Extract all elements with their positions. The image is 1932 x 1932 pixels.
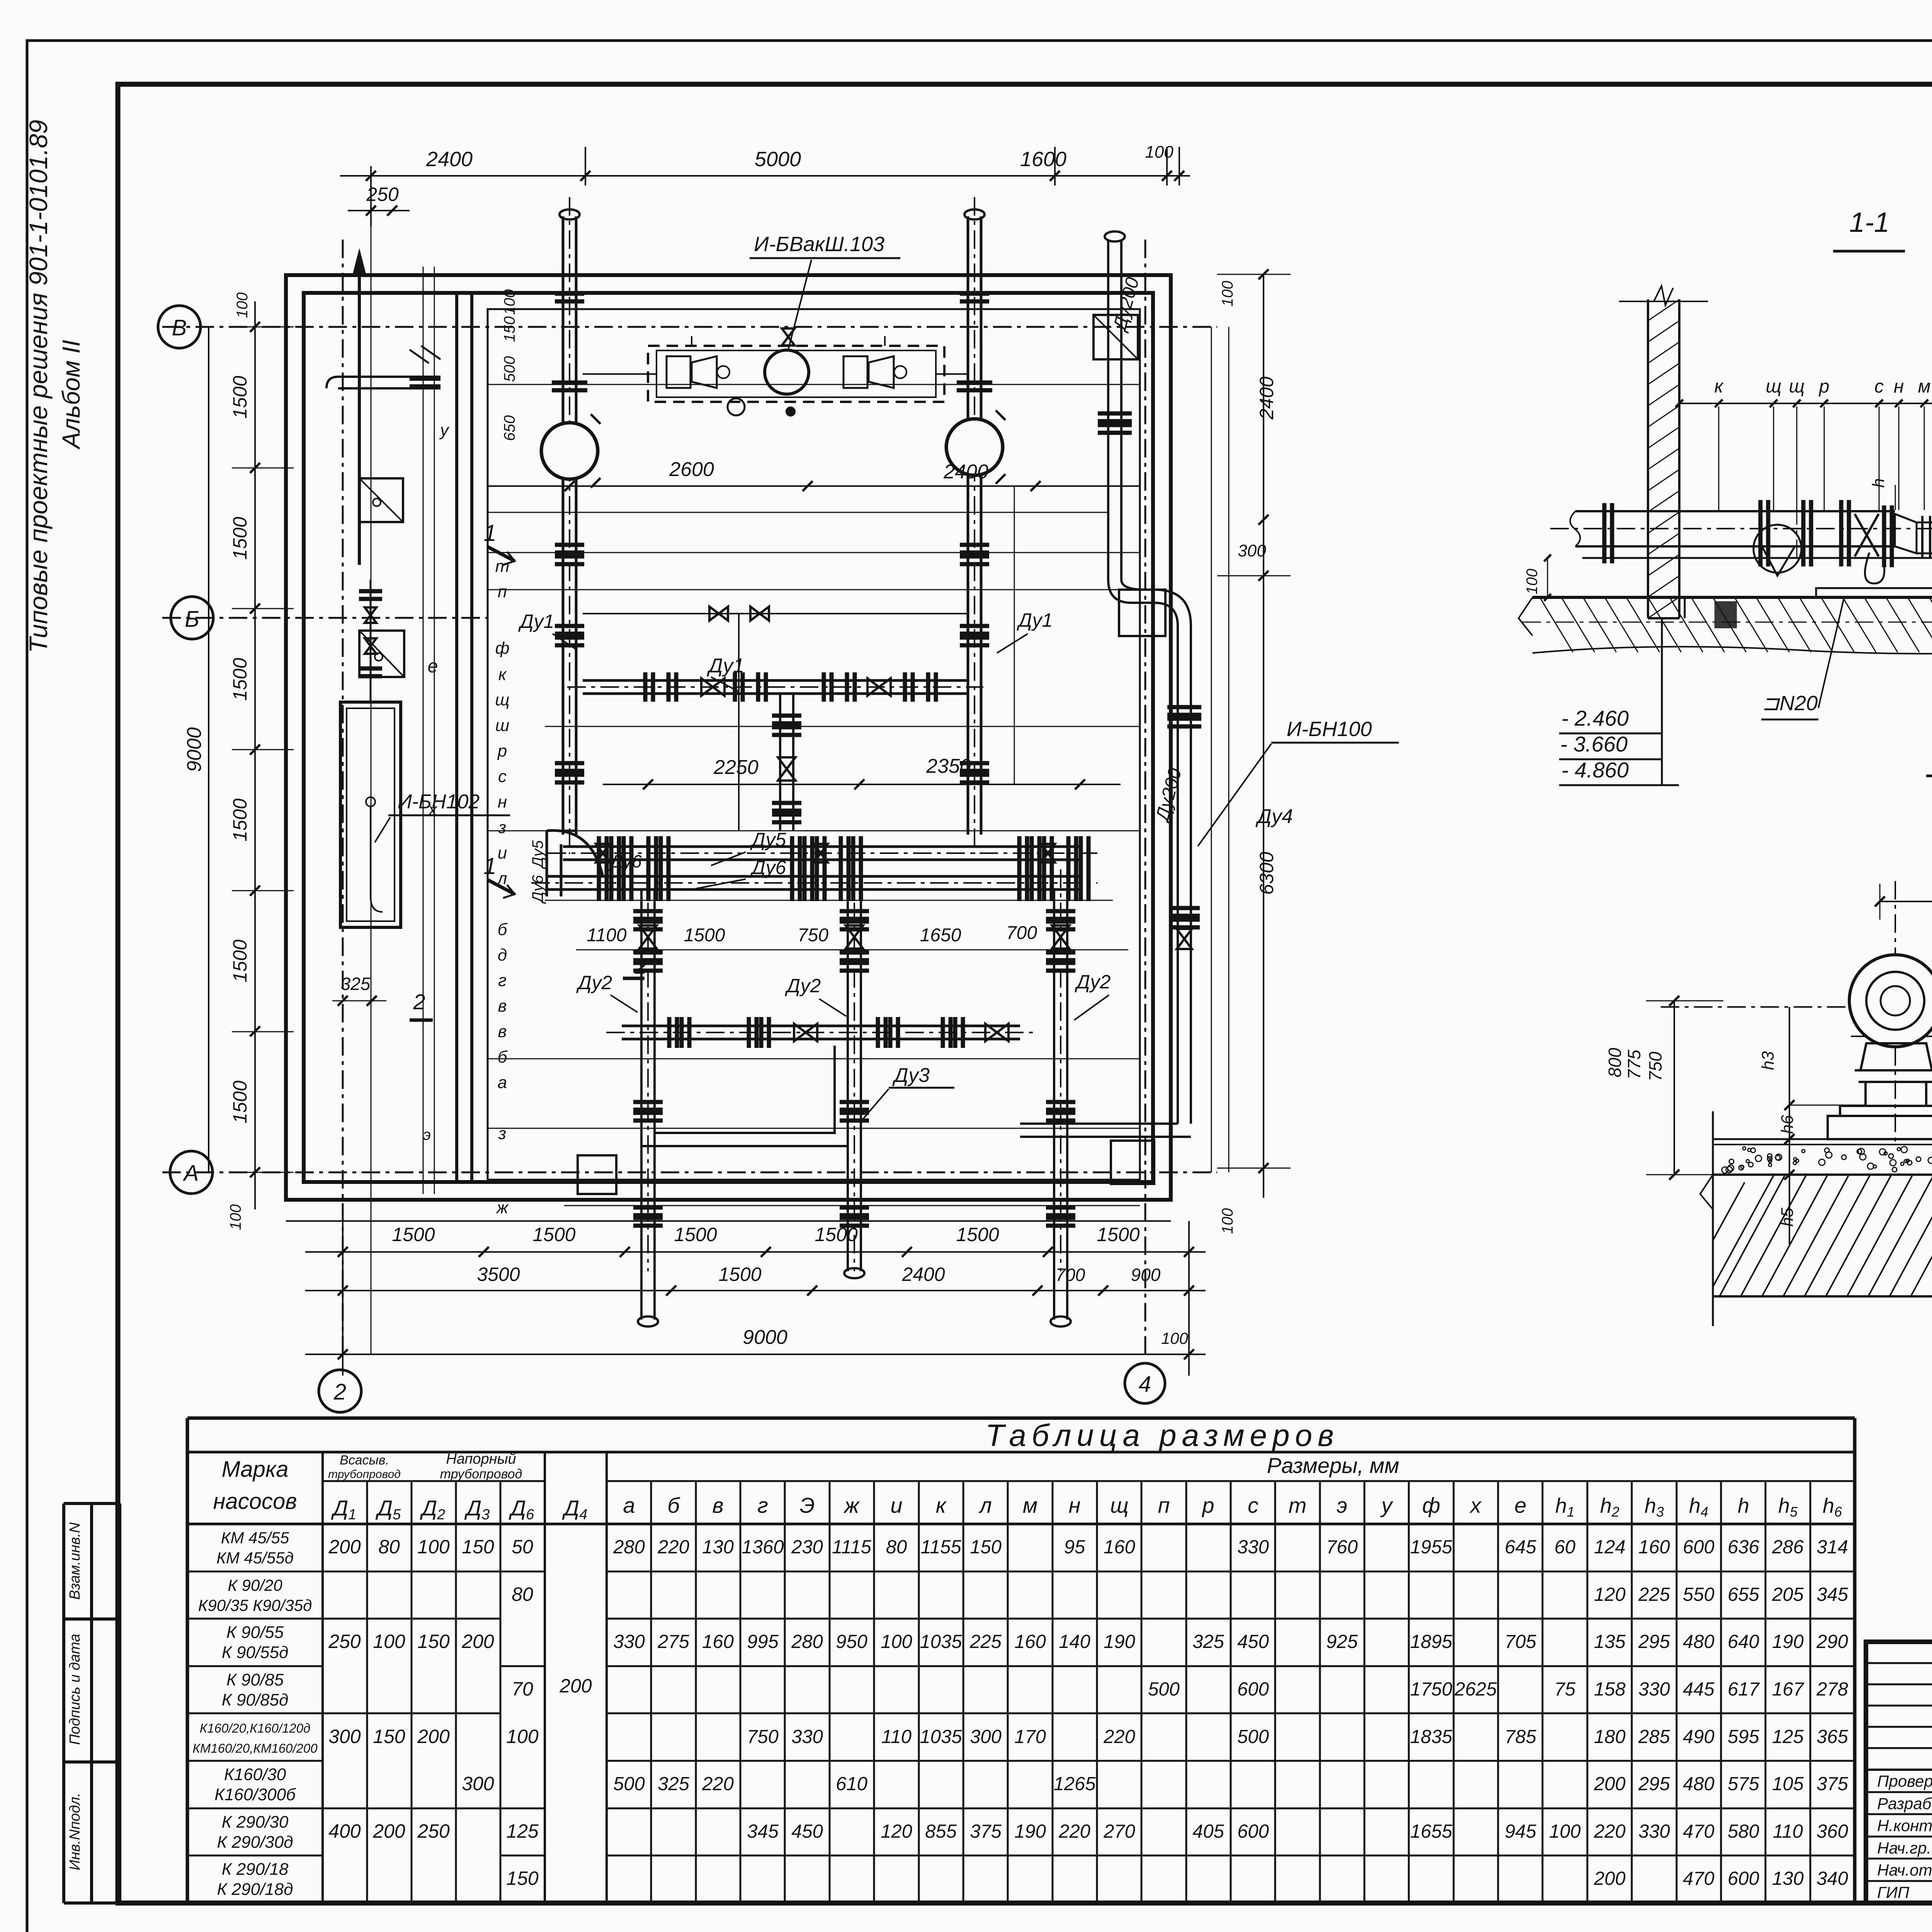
svg-text:925: 925: [1326, 1631, 1358, 1652]
svg-text:280: 280: [613, 1537, 645, 1558]
svg-text:К 90/85д: К 90/85д: [222, 1690, 289, 1709]
svg-text:Ду3: Ду3: [892, 1064, 930, 1087]
svg-text:г: г: [498, 971, 507, 990]
svg-text:h6: h6: [1778, 1115, 1797, 1134]
svg-text:ш: ш: [495, 716, 510, 735]
svg-text:h3: h3: [1759, 1051, 1777, 1070]
svg-text:Взам.инв.N: Взам.инв.N: [67, 1522, 83, 1600]
svg-text:270: 270: [1103, 1821, 1135, 1842]
svg-text:750: 750: [747, 1726, 779, 1747]
svg-text:ГИП: ГИП: [1877, 1883, 1910, 1901]
svg-text:КМ 45/55д: КМ 45/55д: [216, 1549, 294, 1567]
svg-text:200: 200: [1594, 1868, 1626, 1889]
svg-text:100: 100: [506, 1726, 539, 1747]
svg-text:1035: 1035: [920, 1631, 962, 1652]
svg-text:200: 200: [372, 1820, 405, 1842]
svg-text:200: 200: [559, 1675, 592, 1697]
svg-text:150: 150: [373, 1726, 405, 1747]
svg-text:х: х: [1469, 1493, 1482, 1517]
svg-text:з: з: [498, 818, 506, 837]
svg-text:1500: 1500: [674, 1224, 717, 1245]
svg-text:и: и: [890, 1493, 902, 1517]
svg-text:э: э: [1337, 1493, 1347, 1517]
svg-text:220: 220: [1103, 1726, 1135, 1747]
svg-text:ж: ж: [843, 1493, 860, 1517]
svg-text:И-БН102: И-БН102: [398, 791, 480, 813]
svg-text:150: 150: [462, 1536, 494, 1558]
svg-text:340: 340: [1816, 1868, 1848, 1889]
svg-text:Нач.гр.: Нач.гр.: [1877, 1839, 1931, 1857]
svg-text:- 2.460: - 2.460: [1561, 706, 1629, 730]
svg-text:т: т: [495, 557, 510, 576]
svg-text:И-БВакШ.103: И-БВакШ.103: [754, 233, 884, 256]
svg-text:995: 995: [747, 1631, 779, 1652]
svg-text:375: 375: [970, 1821, 1002, 1842]
svg-text:Инв.Nподл.: Инв.Nподл.: [67, 1793, 83, 1871]
svg-text:300: 300: [1238, 541, 1266, 560]
svg-text:167: 167: [1772, 1679, 1804, 1700]
svg-text:п: п: [1158, 1493, 1170, 1517]
svg-text:100: 100: [1219, 281, 1236, 307]
svg-text:325: 325: [658, 1774, 690, 1794]
svg-text:1500: 1500: [684, 925, 725, 946]
svg-text:1500: 1500: [1097, 1224, 1139, 1245]
svg-text:900: 900: [1131, 1265, 1161, 1285]
svg-text:110: 110: [1773, 1821, 1803, 1842]
svg-text:2: 2: [333, 1379, 346, 1405]
svg-text:135: 135: [1594, 1631, 1626, 1652]
svg-text:у: у: [439, 421, 450, 440]
svg-text:1500: 1500: [229, 517, 251, 560]
svg-text:Нач.отд: Нач.отд: [1877, 1861, 1932, 1879]
svg-text:В: В: [172, 315, 187, 340]
svg-text:190: 190: [1014, 1821, 1046, 1842]
svg-text:з: з: [498, 1124, 506, 1143]
svg-text:Ду2: Ду2: [576, 972, 612, 993]
svg-text:500: 500: [501, 356, 518, 382]
svg-text:к: к: [936, 1493, 947, 1517]
svg-text:Б: Б: [185, 607, 199, 632]
svg-text:Всасыв.: Всасыв.: [340, 1453, 389, 1468]
svg-text:160: 160: [702, 1631, 734, 1652]
svg-text:325: 325: [1192, 1631, 1225, 1652]
svg-text:95: 95: [1064, 1537, 1085, 1558]
svg-text:в: в: [498, 997, 507, 1015]
svg-text:100: 100: [501, 289, 518, 315]
svg-text:345: 345: [747, 1821, 779, 1842]
svg-text:б: б: [498, 920, 508, 939]
svg-text:200: 200: [1594, 1774, 1626, 1794]
svg-text:105: 105: [1772, 1774, 1804, 1794]
svg-text:1265: 1265: [1053, 1774, 1096, 1794]
svg-text:125: 125: [1772, 1726, 1804, 1747]
svg-text:205: 205: [1772, 1584, 1804, 1605]
svg-text:200: 200: [461, 1631, 494, 1652]
svg-text:575: 575: [1728, 1774, 1760, 1794]
svg-text:К90/35 К90/35д: К90/35 К90/35д: [198, 1596, 312, 1614]
svg-text:600: 600: [1728, 1868, 1759, 1889]
svg-text:1500: 1500: [229, 798, 251, 841]
svg-text:⊐N20: ⊐N20: [1762, 692, 1818, 715]
svg-text:50: 50: [512, 1536, 533, 1558]
svg-text:120: 120: [1594, 1584, 1626, 1605]
svg-text:130: 130: [1772, 1868, 1804, 1889]
svg-text:р: р: [1201, 1493, 1214, 1517]
svg-text:800: 800: [1605, 1048, 1625, 1077]
svg-text:К160/300б: К160/300б: [214, 1785, 296, 1804]
svg-text:285: 285: [1638, 1726, 1670, 1747]
svg-text:250: 250: [417, 1820, 450, 1842]
svg-text:1115: 1115: [832, 1537, 871, 1558]
svg-text:280: 280: [791, 1631, 823, 1652]
svg-text:775: 775: [1624, 1049, 1644, 1079]
svg-text:1750: 1750: [1410, 1679, 1452, 1700]
svg-text:1835: 1835: [1410, 1726, 1452, 1747]
svg-text:375: 375: [1816, 1774, 1849, 1794]
svg-text:3500: 3500: [477, 1264, 520, 1285]
svg-text:ф: ф: [1422, 1493, 1440, 1517]
svg-text:250: 250: [328, 1631, 361, 1652]
svg-text:с: с: [498, 767, 507, 786]
svg-text:330: 330: [791, 1726, 823, 1747]
svg-text:И-БН100: И-БН100: [1287, 718, 1372, 741]
svg-text:5000: 5000: [755, 148, 801, 171]
svg-text:600: 600: [1237, 1821, 1269, 1842]
svg-text:1: 1: [483, 853, 496, 879]
svg-text:150: 150: [417, 1631, 450, 1652]
svg-text:1500: 1500: [392, 1224, 435, 1245]
svg-text:к: к: [1714, 376, 1724, 397]
svg-text:360: 360: [1816, 1821, 1848, 1842]
svg-text:трубопровод: трубопровод: [440, 1467, 522, 1481]
svg-text:230: 230: [791, 1537, 823, 1558]
svg-text:278: 278: [1816, 1679, 1848, 1700]
svg-text:- 4.860: - 4.860: [1561, 758, 1629, 782]
svg-text:м: м: [1023, 1493, 1037, 1517]
svg-text:200: 200: [417, 1726, 450, 1747]
svg-text:295: 295: [1638, 1631, 1670, 1652]
svg-text:1500: 1500: [956, 1224, 999, 1245]
svg-text:4: 4: [1139, 1372, 1151, 1397]
svg-text:785: 785: [1505, 1726, 1537, 1747]
svg-text:а: а: [498, 1073, 507, 1092]
svg-text:1: 1: [483, 520, 496, 546]
svg-text:190: 190: [1772, 1631, 1804, 1652]
svg-text:щ: щ: [1789, 376, 1805, 397]
svg-text:Подпись и дата: Подпись и дата: [67, 1634, 83, 1745]
svg-text:100: 100: [234, 293, 251, 318]
svg-text:т: т: [1289, 1493, 1307, 1517]
svg-text:Ду6: Ду6: [529, 875, 546, 904]
svg-text:Ду1: Ду1: [518, 611, 554, 632]
svg-text:Напорный: Напорный: [446, 1451, 516, 1467]
svg-text:д: д: [498, 946, 507, 964]
svg-text:158: 158: [1594, 1679, 1626, 1700]
svg-text:1360: 1360: [742, 1537, 784, 1558]
svg-text:490: 490: [1683, 1726, 1714, 1747]
svg-text:275: 275: [657, 1631, 690, 1652]
svg-text:595: 595: [1728, 1726, 1760, 1747]
svg-text:124: 124: [1594, 1537, 1626, 1558]
svg-text:160: 160: [1014, 1631, 1046, 1652]
svg-text:500: 500: [1148, 1679, 1180, 1700]
svg-text:100: 100: [1549, 1821, 1581, 1842]
svg-text:170: 170: [1014, 1726, 1046, 1747]
svg-text:220: 220: [1594, 1821, 1626, 1842]
svg-text:100: 100: [1161, 1329, 1189, 1347]
svg-text:150: 150: [970, 1537, 1002, 1558]
svg-text:950: 950: [836, 1631, 867, 1652]
svg-text:110: 110: [881, 1726, 912, 1747]
svg-text:1500: 1500: [229, 1080, 251, 1123]
svg-text:100: 100: [1219, 1208, 1236, 1234]
svg-text:h: h: [1738, 1494, 1749, 1517]
svg-text:с: с: [1874, 376, 1884, 397]
svg-text:295: 295: [1638, 1774, 1670, 1794]
svg-text:330: 330: [1638, 1679, 1670, 1700]
svg-text:500: 500: [613, 1774, 645, 1794]
svg-text:470: 470: [1683, 1821, 1714, 1842]
svg-text:2400: 2400: [943, 461, 988, 483]
svg-text:220: 220: [702, 1774, 734, 1794]
svg-text:Э: Э: [800, 1493, 815, 1517]
svg-text:Ду6: Ду6: [750, 857, 786, 878]
svg-text:120: 120: [881, 1821, 912, 1842]
svg-text:580: 580: [1728, 1821, 1759, 1842]
svg-text:480: 480: [1683, 1631, 1714, 1652]
svg-text:70: 70: [512, 1678, 533, 1700]
svg-text:636: 636: [1728, 1537, 1760, 1558]
svg-text:Т: Т: [639, 964, 645, 973]
svg-text:150: 150: [506, 1867, 539, 1889]
svg-text:Ду5: Ду5: [529, 840, 546, 869]
svg-text:225: 225: [1638, 1584, 1670, 1605]
svg-text:450: 450: [1237, 1631, 1269, 1652]
svg-text:ж: ж: [496, 1198, 509, 1217]
svg-text:140: 140: [1059, 1631, 1090, 1652]
svg-text:610: 610: [836, 1774, 867, 1794]
svg-text:150: 150: [501, 316, 518, 342]
svg-text:6300: 6300: [1256, 852, 1277, 895]
svg-text:А: А: [183, 1161, 199, 1186]
svg-text:60: 60: [1554, 1537, 1576, 1558]
svg-text:р: р: [497, 742, 507, 760]
svg-text:1500: 1500: [229, 658, 251, 701]
svg-text:- 3.660: - 3.660: [1560, 732, 1628, 756]
svg-text:9000: 9000: [743, 1326, 787, 1349]
svg-text:500: 500: [1237, 1726, 1269, 1747]
svg-text:330: 330: [613, 1631, 645, 1652]
svg-text:2350: 2350: [926, 755, 971, 777]
svg-text:225: 225: [969, 1631, 1002, 1652]
svg-text:405: 405: [1192, 1821, 1225, 1842]
svg-text:2250: 2250: [713, 756, 759, 779]
svg-text:705: 705: [1505, 1631, 1537, 1652]
svg-text:650: 650: [501, 415, 518, 441]
svg-text:е: е: [428, 656, 438, 677]
svg-text:1-1: 1-1: [1849, 207, 1889, 238]
svg-text:п: п: [498, 582, 507, 601]
svg-text:К 90/20: К 90/20: [228, 1576, 282, 1594]
svg-text:К 290/30: К 290/30: [222, 1813, 289, 1832]
svg-text:щ: щ: [1110, 1493, 1129, 1517]
svg-text:КМ 45/55: КМ 45/55: [221, 1529, 289, 1547]
svg-text:КМ160/20,КМ160/200: КМ160/20,КМ160/200: [192, 1741, 318, 1755]
svg-text:К 290/30д: К 290/30д: [217, 1833, 293, 1852]
svg-text:345: 345: [1816, 1584, 1849, 1605]
svg-text:н: н: [1069, 1493, 1081, 1517]
svg-text:470: 470: [1683, 1868, 1714, 1889]
svg-text:450: 450: [791, 1821, 823, 1842]
svg-text:Размеры, мм: Размеры, мм: [1267, 1453, 1399, 1478]
svg-text:а: а: [623, 1493, 635, 1517]
svg-text:300: 300: [462, 1773, 494, 1794]
svg-text:100: 100: [1145, 143, 1173, 162]
svg-text:Провер.: Провер.: [1877, 1772, 1932, 1790]
svg-text:1655: 1655: [1410, 1821, 1452, 1842]
svg-text:855: 855: [925, 1821, 957, 1842]
svg-text:750: 750: [798, 925, 828, 946]
svg-text:2400: 2400: [426, 148, 473, 171]
svg-text:1600: 1600: [1020, 148, 1066, 171]
svg-text:1035: 1035: [920, 1726, 962, 1747]
svg-text:325: 325: [341, 974, 371, 994]
svg-text:700: 700: [1006, 923, 1037, 943]
svg-text:Разраб.: Разраб.: [1877, 1794, 1932, 1813]
svg-text:и: и: [498, 844, 507, 862]
svg-text:80: 80: [512, 1583, 533, 1605]
svg-text:220: 220: [1058, 1821, 1090, 1842]
svg-text:400: 400: [328, 1820, 361, 1842]
svg-text:160: 160: [1638, 1537, 1670, 1558]
svg-text:х: х: [428, 800, 438, 819]
svg-text:200: 200: [328, 1536, 361, 1558]
svg-text:314: 314: [1816, 1537, 1848, 1558]
svg-text:трубопровод: трубопровод: [328, 1468, 401, 1481]
svg-text:290: 290: [1816, 1631, 1848, 1652]
svg-text:ф: ф: [495, 639, 510, 658]
svg-text:в: в: [498, 1022, 507, 1041]
svg-text:в: в: [712, 1493, 723, 1517]
svg-text:330: 330: [1638, 1821, 1670, 1842]
svg-text:б: б: [498, 1048, 508, 1066]
svg-text:К160/30: К160/30: [224, 1765, 286, 1784]
svg-text:550: 550: [1683, 1584, 1714, 1605]
svg-text:9000: 9000: [183, 727, 206, 772]
svg-text:Ду1: Ду1: [1017, 609, 1053, 631]
svg-text:К 90/55д: К 90/55д: [222, 1643, 289, 1662]
svg-text:2600: 2600: [669, 458, 714, 481]
svg-text:760: 760: [1326, 1537, 1358, 1558]
svg-text:Таблица размеров: Таблица размеров: [985, 1418, 1339, 1452]
svg-text:насосов: насосов: [213, 1489, 297, 1514]
svg-text:Ду4: Ду4: [1255, 805, 1293, 828]
svg-text:Типовые проектные решения 9: Типовые проектные решения 901-1-0101.89: [24, 120, 53, 653]
svg-text:б: б: [667, 1493, 680, 1517]
svg-text:300: 300: [970, 1726, 1002, 1747]
svg-text:1895: 1895: [1410, 1631, 1452, 1652]
svg-text:h5: h5: [1778, 1207, 1797, 1226]
svg-text:100: 100: [373, 1631, 405, 1652]
svg-text:655: 655: [1728, 1584, 1760, 1605]
svg-text:е: е: [1514, 1493, 1526, 1517]
svg-text:2400: 2400: [901, 1264, 945, 1285]
svg-text:л: л: [978, 1493, 992, 1517]
svg-text:600: 600: [1237, 1679, 1269, 1700]
svg-text:щ: щ: [1766, 376, 1782, 397]
svg-text:300: 300: [328, 1726, 361, 1747]
svg-text:щ: щ: [495, 690, 509, 709]
svg-text:445: 445: [1683, 1679, 1715, 1700]
svg-text:1500: 1500: [718, 1264, 761, 1285]
svg-text:125: 125: [506, 1820, 539, 1842]
svg-text:у: у: [1380, 1493, 1393, 1517]
svg-text:h: h: [1869, 478, 1888, 488]
svg-text:Ду6: Ду6: [608, 851, 642, 871]
svg-text:100: 100: [417, 1536, 450, 1558]
svg-text:220: 220: [657, 1537, 689, 1558]
svg-text:2400: 2400: [1256, 376, 1277, 420]
svg-text:К 90/85: К 90/85: [226, 1670, 284, 1689]
svg-text:330: 330: [1237, 1537, 1269, 1558]
svg-text:Альбом II: Альбом II: [57, 340, 85, 450]
svg-text:К 290/18д: К 290/18д: [217, 1880, 293, 1899]
svg-text:945: 945: [1505, 1821, 1537, 1842]
svg-text:н: н: [1894, 376, 1904, 397]
svg-text:100: 100: [227, 1204, 244, 1230]
svg-text:190: 190: [1104, 1631, 1135, 1652]
svg-text:75: 75: [1554, 1679, 1576, 1700]
svg-text:480: 480: [1683, 1774, 1714, 1794]
svg-text:1955: 1955: [1410, 1537, 1452, 1558]
svg-text:с: с: [1248, 1493, 1259, 1517]
svg-text:80: 80: [378, 1536, 400, 1558]
svg-text:р: р: [1818, 376, 1830, 397]
svg-text:640: 640: [1728, 1631, 1759, 1652]
svg-text:600: 600: [1683, 1537, 1714, 1558]
svg-text:Ду5: Ду5: [750, 829, 786, 850]
svg-text:365: 365: [1816, 1726, 1849, 1747]
svg-text:н: н: [498, 793, 507, 811]
svg-text:130: 130: [702, 1537, 734, 1558]
svg-text:Ду2: Ду2: [785, 975, 821, 997]
svg-text:617: 617: [1728, 1679, 1760, 1700]
svg-text:Ду2: Ду2: [1075, 971, 1111, 993]
svg-text:100: 100: [881, 1631, 912, 1652]
svg-text:80: 80: [886, 1537, 907, 1558]
svg-text:к: к: [498, 665, 507, 684]
svg-text:645: 645: [1505, 1537, 1537, 1558]
svg-text:1650: 1650: [920, 925, 961, 946]
svg-text:Н.контр.: Н.контр.: [1877, 1816, 1932, 1835]
svg-text:2625: 2625: [1454, 1679, 1497, 1700]
svg-text:м: м: [1918, 376, 1931, 397]
svg-text:286: 286: [1772, 1537, 1804, 1558]
svg-text:э: э: [423, 1126, 431, 1143]
svg-text:К160/20,К160/120д: К160/20,К160/120д: [200, 1721, 311, 1735]
svg-text:Марка: Марка: [221, 1457, 288, 1482]
svg-text:1500: 1500: [532, 1224, 575, 1245]
svg-text:г: г: [757, 1493, 768, 1517]
svg-text:л: л: [497, 869, 507, 888]
svg-text:1100: 1100: [587, 925, 627, 946]
svg-text:К 90/55: К 90/55: [226, 1623, 284, 1642]
svg-text:180: 180: [1594, 1726, 1626, 1747]
svg-text:160: 160: [1104, 1537, 1135, 1558]
svg-text:К 290/18: К 290/18: [222, 1860, 289, 1879]
svg-text:750: 750: [1645, 1051, 1665, 1081]
svg-text:100: 100: [1524, 569, 1541, 595]
